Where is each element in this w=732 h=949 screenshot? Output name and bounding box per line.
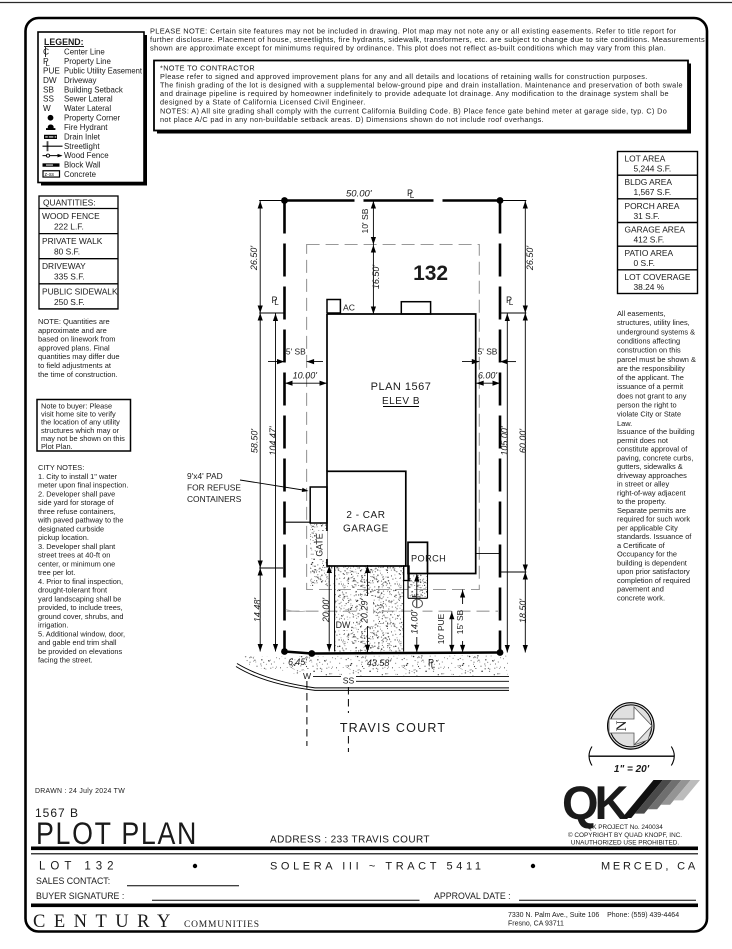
svg-text:approved plans. Final: approved plans. Final bbox=[38, 343, 110, 352]
svg-text:PUE: PUE bbox=[43, 66, 60, 75]
svg-text:1,567 S.F.: 1,567 S.F. bbox=[634, 187, 672, 197]
svg-text:of the applicant. The: of the applicant. The bbox=[617, 373, 684, 382]
svg-text:to field adjustments at: to field adjustments at bbox=[38, 361, 112, 370]
svg-text:W: W bbox=[43, 104, 51, 113]
svg-text:violate City or State: violate City or State bbox=[617, 410, 681, 419]
svg-text:designated curbside: designated curbside bbox=[38, 524, 104, 533]
svg-text:facing the street.: facing the street. bbox=[38, 656, 93, 665]
svg-text:PRIVATE WALK: PRIVATE WALK bbox=[42, 236, 103, 246]
svg-text:upon prior satisfactory: upon prior satisfactory bbox=[617, 567, 690, 576]
svg-text:31 S.F.: 31 S.F. bbox=[634, 211, 660, 221]
svg-text:CONTAINERS: CONTAINERS bbox=[187, 494, 242, 504]
svg-text:and gable end trim shall: and gable end trim shall bbox=[38, 638, 117, 647]
svg-text:SS: SS bbox=[43, 95, 54, 104]
svg-text:DW: DW bbox=[336, 620, 351, 630]
svg-text:L: L bbox=[509, 298, 514, 307]
svg-text:are the responsibility: are the responsibility bbox=[617, 364, 685, 373]
svg-text:SS: SS bbox=[343, 676, 355, 686]
svg-text:GARAGE: GARAGE bbox=[343, 524, 389, 535]
svg-text:PATIO AREA: PATIO AREA bbox=[625, 248, 674, 258]
svg-text:14.00': 14.00' bbox=[409, 610, 419, 635]
svg-text:Fresno, CA 93711: Fresno, CA 93711 bbox=[508, 921, 564, 928]
svg-text:18.50': 18.50' bbox=[518, 599, 528, 624]
svg-text:7330 N. Palm Ave., Suite 106: 7330 N. Palm Ave., Suite 106 Phone: (559… bbox=[508, 912, 679, 919]
svg-text:side yard for storage of: side yard for storage of bbox=[38, 498, 115, 507]
svg-text:GATE: GATE bbox=[315, 533, 325, 556]
svg-text:W: W bbox=[303, 671, 312, 681]
svg-text:meter upon final inspection.: meter upon final inspection. bbox=[38, 481, 128, 490]
svg-text:Property Corner: Property Corner bbox=[64, 114, 121, 123]
svg-text:yard landscaping shall be: yard landscaping shall be bbox=[38, 594, 121, 603]
svg-text:20.00': 20.00' bbox=[321, 598, 331, 624]
svg-text:be provided on elevations: be provided on elevations bbox=[38, 647, 123, 656]
svg-text:QK PROJECT No. 240034: QK PROJECT No. 240034 bbox=[587, 824, 663, 831]
svg-text:132: 132 bbox=[413, 262, 448, 285]
svg-text:does not grant to any: does not grant to any bbox=[617, 391, 687, 400]
svg-text:PUBLIC SIDEWALK: PUBLIC SIDEWALK bbox=[42, 286, 118, 296]
svg-text:L: L bbox=[274, 298, 279, 307]
svg-text:paving, concrete curbs,: paving, concrete curbs, bbox=[617, 453, 693, 462]
svg-text:Building Setback: Building Setback bbox=[64, 85, 123, 94]
svg-text:DW: DW bbox=[43, 76, 57, 85]
svg-text:Issuance of the building: Issuance of the building bbox=[617, 427, 695, 436]
svg-text:pavement and: pavement and bbox=[617, 585, 664, 594]
svg-text:driveway approaches: driveway approaches bbox=[617, 471, 687, 480]
svg-text:105.00': 105.00' bbox=[500, 426, 510, 456]
svg-text:0 S.F.: 0 S.F. bbox=[634, 258, 655, 268]
svg-text:DRIVEWAY: DRIVEWAY bbox=[42, 261, 86, 271]
svg-text:Water Lateral: Water Lateral bbox=[64, 104, 111, 113]
svg-text:AC: AC bbox=[343, 303, 355, 313]
svg-text:Concrete: Concrete bbox=[64, 170, 97, 179]
svg-text:underground systems &: underground systems & bbox=[617, 327, 695, 336]
svg-text:permit does not: permit does not bbox=[617, 436, 668, 445]
svg-text:1. City to install 1" water: 1. City to install 1" water bbox=[38, 472, 118, 481]
svg-text:Driveway: Driveway bbox=[64, 76, 96, 85]
svg-text:6.00': 6.00' bbox=[478, 370, 498, 380]
svg-text:shown are approximate except f: shown are approximate except for minimum… bbox=[150, 44, 666, 53]
svg-text:60.00': 60.00' bbox=[518, 429, 528, 454]
svg-text:LOT 132: LOT 132 bbox=[39, 861, 119, 873]
svg-text:UNAUTHORIZED USE PROHIBITED.: UNAUTHORIZED USE PROHIBITED. bbox=[571, 840, 680, 847]
svg-text:5. Additional window, door,: 5. Additional window, door, bbox=[38, 629, 125, 638]
svg-text:PLAN 1567: PLAN 1567 bbox=[371, 381, 432, 393]
svg-text:QUANTITIES:: QUANTITIES: bbox=[43, 198, 96, 208]
svg-text:QK: QK bbox=[562, 776, 629, 829]
svg-text:All easements,: All easements, bbox=[617, 309, 665, 318]
svg-text:58.50': 58.50' bbox=[250, 429, 260, 454]
svg-text:2. Developer shall pave: 2. Developer shall pave bbox=[38, 489, 115, 498]
svg-text:street trees at 40-ft on: street trees at 40-ft on bbox=[38, 551, 110, 560]
svg-text:10' PUE: 10' PUE bbox=[436, 613, 446, 644]
svg-text:MERCED, CA: MERCED, CA bbox=[601, 861, 698, 873]
svg-text:LOT AREA: LOT AREA bbox=[625, 154, 666, 164]
svg-text:not place A/C pad in any non-b: not place A/C pad in any non-buildable s… bbox=[160, 115, 544, 124]
svg-text:10' SB: 10' SB bbox=[360, 208, 370, 233]
svg-text:26.50': 26.50' bbox=[249, 246, 259, 272]
svg-text:pickup location.: pickup location. bbox=[38, 533, 89, 542]
svg-text:2 - CAR: 2 - CAR bbox=[346, 510, 385, 521]
svg-text:structures, utility lines,: structures, utility lines, bbox=[617, 318, 690, 327]
svg-text:PLOT PLAN: PLOT PLAN bbox=[36, 817, 198, 851]
svg-text:16.50': 16.50' bbox=[371, 265, 381, 290]
svg-text:right-of-way adjacent: right-of-way adjacent bbox=[617, 488, 686, 497]
svg-text:43.58': 43.58' bbox=[367, 658, 392, 668]
svg-text:provided, to include trees,: provided, to include trees, bbox=[38, 603, 123, 612]
svg-text:building is dependent: building is dependent bbox=[617, 558, 687, 567]
svg-text:person the right to: person the right to bbox=[617, 401, 677, 410]
svg-text:Property Line: Property Line bbox=[64, 57, 112, 66]
svg-text:conditions affecting: conditions affecting bbox=[617, 336, 680, 345]
svg-text:NOTE: Quantities are: NOTE: Quantities are bbox=[38, 317, 110, 326]
svg-text:completion of required: completion of required bbox=[617, 576, 690, 585]
svg-text:tree per lot.: tree per lot. bbox=[38, 568, 75, 577]
svg-text:FOR REFUSE: FOR REFUSE bbox=[187, 483, 241, 493]
svg-text:ADDRESS : 233 TRAVIS COURT: ADDRESS : 233 TRAVIS COURT bbox=[270, 835, 430, 846]
svg-text:Plot Plan.: Plot Plan. bbox=[41, 442, 73, 451]
svg-text:222 L.F.: 222 L.F. bbox=[54, 222, 84, 232]
svg-text:9'x4' PAD: 9'x4' PAD bbox=[187, 471, 223, 481]
svg-text:SALES CONTACT:: SALES CONTACT: bbox=[36, 876, 110, 886]
svg-text:SB: SB bbox=[43, 85, 54, 94]
svg-text:irrigation.: irrigation. bbox=[38, 621, 68, 630]
svg-text:38.24 %: 38.24 % bbox=[634, 282, 665, 292]
svg-text:construction on this: construction on this bbox=[617, 346, 681, 355]
svg-text:SOLERA III ~ TRACT 5411: SOLERA III ~ TRACT 5411 bbox=[270, 861, 485, 873]
svg-text:PORCH: PORCH bbox=[411, 554, 446, 564]
svg-text:per applicable City: per applicable City bbox=[617, 523, 678, 532]
svg-text:quantities may differ due: quantities may differ due bbox=[38, 352, 120, 361]
svg-text:15' SB: 15' SB bbox=[455, 609, 465, 634]
svg-text:WOOD FENCE: WOOD FENCE bbox=[42, 211, 100, 221]
svg-text:LOT COVERAGE: LOT COVERAGE bbox=[625, 272, 691, 282]
svg-text:ELEV B: ELEV B bbox=[382, 396, 420, 407]
svg-text:L: L bbox=[410, 191, 415, 200]
svg-text:3. Developer shall plant: 3. Developer shall plant bbox=[38, 542, 115, 551]
svg-text:Fire Hydrant: Fire Hydrant bbox=[64, 123, 108, 132]
svg-text:based on linework from: based on linework from bbox=[38, 335, 116, 344]
svg-text:concrete work.: concrete work. bbox=[617, 593, 665, 602]
svg-text:4. Prior to final inspection,: 4. Prior to final inspection, bbox=[38, 577, 123, 586]
svg-text:104.47': 104.47' bbox=[268, 426, 278, 456]
svg-text:Wood Fence: Wood Fence bbox=[64, 151, 109, 160]
svg-text:Block Wall: Block Wall bbox=[64, 161, 101, 170]
svg-text:50.00': 50.00' bbox=[346, 189, 373, 200]
svg-text:5,244 S.F.: 5,244 S.F. bbox=[634, 164, 672, 174]
svg-text:PORCH AREA: PORCH AREA bbox=[625, 201, 680, 211]
svg-text:Separate permits are: Separate permits are bbox=[617, 506, 686, 515]
svg-text:26.50': 26.50' bbox=[525, 246, 535, 272]
svg-text:parcel must be shown &: parcel must be shown & bbox=[617, 355, 696, 364]
svg-text:Center Line: Center Line bbox=[64, 48, 105, 57]
svg-text:CENTURY: CENTURY bbox=[33, 912, 179, 932]
svg-text:center, or minimum one: center, or minimum one bbox=[38, 559, 115, 568]
svg-text:5' SB: 5' SB bbox=[478, 347, 498, 357]
svg-text:APPROVAL DATE :: APPROVAL DATE : bbox=[434, 891, 511, 901]
svg-text:ground cover, shrubs, and: ground cover, shrubs, and bbox=[38, 612, 123, 621]
svg-text:three refuse containers,: three refuse containers, bbox=[38, 507, 116, 516]
svg-text:10.00': 10.00' bbox=[293, 370, 318, 380]
svg-text:Public Utility Easement: Public Utility Easement bbox=[64, 66, 143, 75]
svg-text:Sewer Lateral: Sewer Lateral bbox=[64, 95, 113, 104]
svg-text:DRAWN : 24 July 2024 TW: DRAWN : 24 July 2024 TW bbox=[35, 788, 125, 795]
svg-text:with paved pathway to the: with paved pathway to the bbox=[37, 516, 123, 525]
svg-text:approximate and are: approximate and are bbox=[38, 326, 107, 335]
svg-text:1" = 20': 1" = 20' bbox=[614, 764, 650, 775]
svg-text:in street or alley: in street or alley bbox=[617, 480, 669, 489]
svg-text:5' SB: 5' SB bbox=[286, 347, 306, 357]
svg-text:the time of construction.: the time of construction. bbox=[38, 370, 118, 379]
svg-text:TRAVIS COURT: TRAVIS COURT bbox=[340, 721, 446, 735]
svg-text:412 S.F.: 412 S.F. bbox=[634, 235, 665, 245]
svg-text:N: N bbox=[614, 720, 630, 731]
svg-text:Streetlight: Streetlight bbox=[64, 142, 100, 151]
svg-text:constitute approval of: constitute approval of bbox=[617, 445, 688, 454]
svg-text:20.29': 20.29' bbox=[360, 599, 370, 625]
svg-text:LEGEND:: LEGEND: bbox=[44, 37, 84, 47]
svg-text:z-ss: z-ss bbox=[45, 172, 55, 178]
svg-text:Occupancy for the: Occupancy for the bbox=[617, 550, 677, 559]
svg-text:a Certificate of: a Certificate of bbox=[617, 541, 666, 550]
svg-text:standards. Issuance of: standards. Issuance of bbox=[617, 532, 692, 541]
svg-text:250 S.F.: 250 S.F. bbox=[54, 297, 85, 307]
svg-text:issuance of a permit: issuance of a permit bbox=[617, 382, 683, 391]
svg-text:required for such work: required for such work bbox=[617, 515, 690, 524]
svg-text:80 S.F.: 80 S.F. bbox=[54, 247, 80, 257]
svg-text:BUYER SIGNATURE :: BUYER SIGNATURE : bbox=[36, 891, 124, 901]
svg-text:335 S.F.: 335 S.F. bbox=[54, 272, 85, 282]
svg-text:drought-tolerant front: drought-tolerant front bbox=[38, 586, 107, 595]
svg-text:gutters, sidewalks &: gutters, sidewalks & bbox=[617, 462, 683, 471]
svg-text:GARAGE AREA: GARAGE AREA bbox=[625, 225, 686, 235]
svg-text:L: L bbox=[431, 660, 436, 669]
svg-text:BLDG AREA: BLDG AREA bbox=[625, 177, 673, 187]
svg-text:CITY NOTES:: CITY NOTES: bbox=[38, 463, 84, 472]
svg-text:© COPYRIGHT BY QUAD KNOPF, IN: © COPYRIGHT BY QUAD KNOPF, INC. bbox=[568, 831, 682, 839]
svg-text:14.48': 14.48' bbox=[253, 598, 263, 623]
svg-text:COMMUNITIES: COMMUNITIES bbox=[184, 920, 260, 930]
svg-text:Drain Inlet: Drain Inlet bbox=[64, 132, 101, 141]
svg-text:to the property.: to the property. bbox=[617, 497, 666, 506]
svg-text:6.45': 6.45' bbox=[288, 657, 307, 667]
